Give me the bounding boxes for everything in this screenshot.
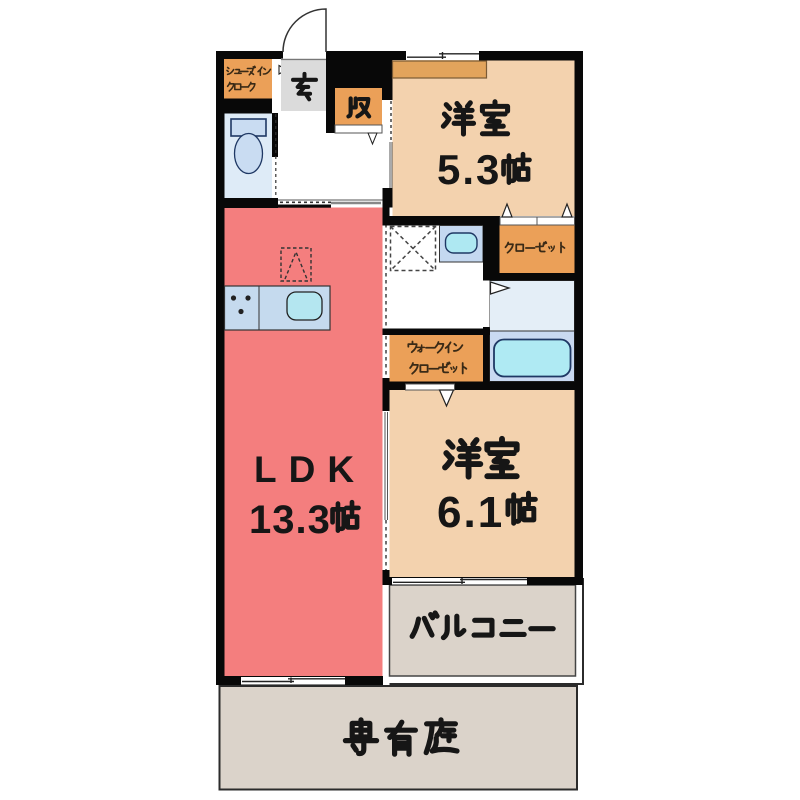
svg-text:LDK: LDK xyxy=(254,449,366,490)
svg-text:5.3: 5.3 xyxy=(437,146,501,193)
svg-text:13.3: 13.3 xyxy=(249,498,331,542)
svg-text:6.1: 6.1 xyxy=(437,488,504,537)
